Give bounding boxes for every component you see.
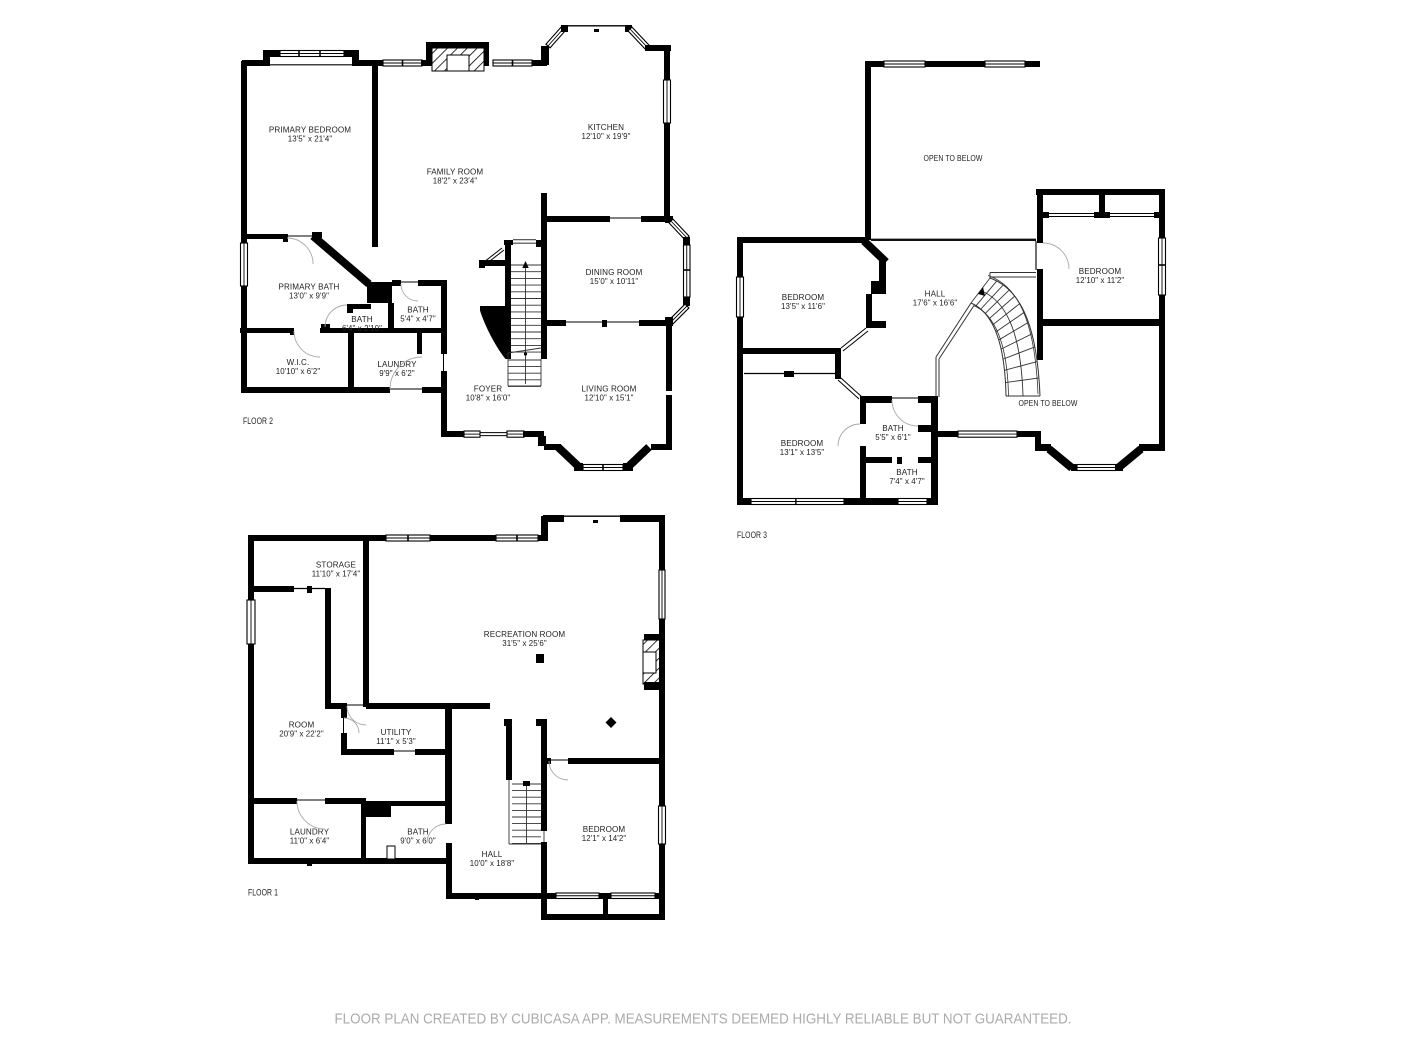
svg-text:10'8" x 16'0": 10'8" x 16'0" [466,394,511,403]
svg-text:5'4" x 4'7": 5'4" x 4'7" [400,315,436,324]
svg-text:FLOOR 2: FLOOR 2 [243,416,273,426]
svg-text:RECREATION ROOM: RECREATION ROOM [484,630,566,639]
svg-text:OPEN TO BELOW: OPEN TO BELOW [1019,399,1078,408]
svg-text:31'5" x 25'6": 31'5" x 25'6" [502,639,547,648]
svg-text:9'9" x 6'2": 9'9" x 6'2" [379,369,415,378]
svg-text:DINING ROOM: DINING ROOM [586,268,643,277]
svg-text:LAUNDRY: LAUNDRY [377,360,417,369]
svg-text:BATH: BATH [407,828,428,837]
svg-text:LIVING ROOM: LIVING ROOM [581,385,636,394]
svg-text:6'4" x 2'10": 6'4" x 2'10" [342,324,382,333]
svg-text:17'6" x 16'6": 17'6" x 16'6" [913,299,958,308]
svg-text:BEDROOM: BEDROOM [1079,267,1122,276]
svg-text:BATH: BATH [896,468,917,477]
svg-text:10'10" x 6'2": 10'10" x 6'2" [276,367,321,376]
svg-text:11'1" x 5'3": 11'1" x 5'3" [376,737,416,746]
svg-text:7'4" x 4'7": 7'4" x 4'7" [889,477,925,486]
svg-text:PRIMARY BATH: PRIMARY BATH [278,283,339,292]
svg-text:13'0" x 9'9": 13'0" x 9'9" [289,292,329,301]
svg-text:STORAGE: STORAGE [316,561,357,570]
svg-text:12'10" x 11'2": 12'10" x 11'2" [1076,276,1125,285]
svg-text:BATH: BATH [407,306,428,315]
svg-text:FOYER: FOYER [474,385,502,394]
svg-text:15'0" x 10'11": 15'0" x 10'11" [590,277,639,286]
svg-text:FLOOR PLAN CREATED BY CUBICASA: FLOOR PLAN CREATED BY CUBICASA APP. MEAS… [335,1012,1072,1028]
svg-text:FLOOR 1: FLOOR 1 [248,888,278,898]
svg-text:ROOM: ROOM [289,721,315,730]
svg-text:BEDROOM: BEDROOM [781,439,824,448]
svg-text:5'5" x 6'1": 5'5" x 6'1" [875,433,911,442]
svg-text:BATH: BATH [351,315,372,324]
svg-text:11'10" x 17'4": 11'10" x 17'4" [312,570,361,579]
svg-text:11'0" x 6'4": 11'0" x 6'4" [290,837,330,846]
svg-text:9'0" x 6'0": 9'0" x 6'0" [400,837,436,846]
svg-text:FLOOR 3: FLOOR 3 [737,530,767,540]
svg-text:20'9" x 22'2": 20'9" x 22'2" [279,730,324,739]
svg-text:FAMILY ROOM: FAMILY ROOM [427,168,484,177]
svg-text:KITCHEN: KITCHEN [588,123,624,132]
svg-text:BEDROOM: BEDROOM [782,293,825,302]
svg-text:OPEN TO BELOW: OPEN TO BELOW [924,154,983,163]
svg-text:W.I.C.: W.I.C. [287,358,310,367]
svg-text:PRIMARY BEDROOM: PRIMARY BEDROOM [269,126,351,135]
svg-text:13'5" x 11'6": 13'5" x 11'6" [781,302,825,311]
svg-text:12'10" x 19'9": 12'10" x 19'9" [581,132,630,141]
svg-text:HALL: HALL [482,850,503,859]
svg-text:10'0" x 18'8": 10'0" x 18'8" [470,859,515,868]
svg-text:18'2" x 23'4": 18'2" x 23'4" [433,177,478,186]
svg-text:BEDROOM: BEDROOM [583,825,626,834]
svg-text:13'1" x 13'5": 13'1" x 13'5" [780,448,825,457]
svg-text:BATH: BATH [882,424,903,433]
svg-text:HALL: HALL [925,290,946,299]
svg-text:UTILITY: UTILITY [381,728,412,737]
svg-text:13'5" x 21'4": 13'5" x 21'4" [288,135,333,144]
svg-text:12'1" x 14'2": 12'1" x 14'2" [582,834,627,843]
svg-text:12'10" x 15'1": 12'10" x 15'1" [584,394,633,403]
